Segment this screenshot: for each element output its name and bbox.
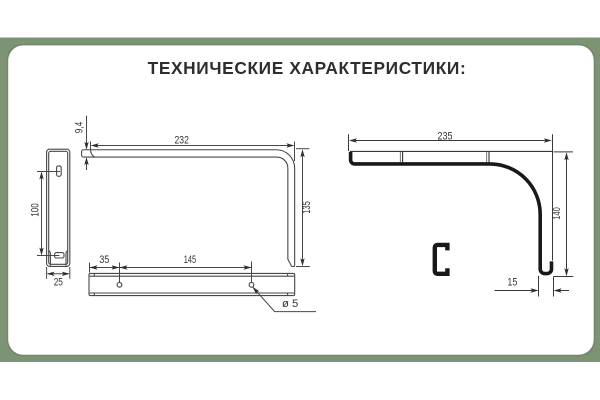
- svg-text:232: 232: [175, 135, 189, 147]
- svg-text:15: 15: [507, 276, 517, 288]
- svg-text:100: 100: [29, 203, 41, 217]
- svg-text:35: 35: [99, 254, 109, 266]
- svg-text:145: 145: [184, 254, 196, 266]
- svg-text:140: 140: [552, 207, 563, 220]
- svg-text:ø 5: ø 5: [282, 298, 298, 310]
- svg-text:25: 25: [54, 277, 63, 289]
- svg-text:135: 135: [301, 201, 313, 214]
- svg-text:235: 235: [438, 130, 453, 142]
- svg-text:ТЕХНИЧЕСКИЕ ХАРАКТЕРИСТИКИ:: ТЕХНИЧЕСКИЕ ХАРАКТЕРИСТИКИ:: [148, 58, 467, 78]
- svg-text:9,4: 9,4: [74, 122, 86, 134]
